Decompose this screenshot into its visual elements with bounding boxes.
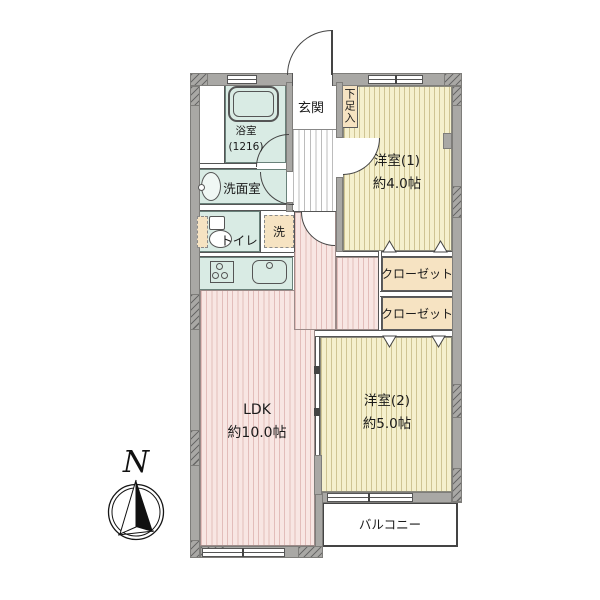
label-balcony: バルコニー xyxy=(359,515,421,535)
window-top-room1-mullion xyxy=(395,75,397,84)
hatch-right-mid2 xyxy=(452,384,462,418)
label-washroom: 洗面室 xyxy=(223,179,261,199)
ldk-room2-slider xyxy=(315,337,320,456)
washbasin-faucet xyxy=(198,184,205,191)
kitchen-sink-faucet xyxy=(266,262,273,269)
window-top-bathroom xyxy=(227,75,257,84)
room1-bottom-wall xyxy=(336,251,453,257)
laundry-pan: 洗 xyxy=(264,215,294,248)
toilet-cabinet xyxy=(197,216,208,248)
label-bathroom: 浴室 (1216) xyxy=(229,124,264,156)
kitchen-top-wall xyxy=(199,252,294,257)
stove-burner-3 xyxy=(221,272,228,279)
hatch-left-mid xyxy=(190,294,200,330)
corridor-room1-wall-lower xyxy=(336,177,343,252)
room-ldk-floor-arm-b xyxy=(336,257,379,330)
entrance-door-leaf xyxy=(331,30,333,75)
hatch-bottom-left xyxy=(190,540,200,558)
window-balcony-slider xyxy=(327,493,413,502)
label-closet2: クローゼット xyxy=(381,305,453,324)
label-toilet: トイレ xyxy=(220,231,258,251)
toilet-laundry-divider xyxy=(260,211,261,252)
right-wall-pillar xyxy=(443,133,452,149)
hatch-right-lower xyxy=(452,468,462,502)
compass: N xyxy=(96,444,180,554)
stove-burner-1 xyxy=(216,263,223,270)
bathtub-inner xyxy=(233,91,274,117)
ldk-balcony-wall xyxy=(315,492,323,547)
slider-tick-2 xyxy=(314,408,320,416)
slider-lower-wall xyxy=(314,455,322,495)
outer-wall-right xyxy=(452,73,462,503)
hatch-top-left xyxy=(190,73,208,86)
corridor-floor xyxy=(293,130,336,211)
closet-divider-wall xyxy=(380,291,453,297)
slider-tick-1 xyxy=(314,366,320,374)
washroom-toilet-wall xyxy=(199,204,294,211)
hatch-left-lower xyxy=(190,430,200,466)
genkan-step-line xyxy=(293,129,336,130)
laundry-label: 洗 xyxy=(273,223,285,240)
room2-top-wall xyxy=(315,330,455,337)
entrance-door-arc xyxy=(287,30,332,75)
label-room1: 洋室(1) 約4.0帖 xyxy=(373,150,421,196)
toilet-tank xyxy=(209,216,225,230)
compass-north-label: N xyxy=(122,445,151,480)
stove-burner-2 xyxy=(212,272,219,279)
label-closet1: クローゼット xyxy=(381,265,453,284)
label-room2: 洋室(2) 約5.0帖 xyxy=(363,390,411,436)
hatch-right-upper xyxy=(452,86,462,106)
bathroom-left-divider xyxy=(224,82,225,163)
window-bottom-ldk-mullion xyxy=(242,548,244,557)
floorplan-canvas: 洗 N 玄関 下足入 浴室 (1216) 洗面室 トイレ 洋室(1) 約4.0帖… xyxy=(0,0,600,600)
hatch-bottom-right xyxy=(298,546,323,558)
window-balcony-mullion xyxy=(368,493,370,502)
hatch-left-upper xyxy=(190,86,200,106)
label-genkan: 玄関 xyxy=(298,99,324,120)
laundry-right-divider xyxy=(294,211,295,252)
hatch-right-mid1 xyxy=(452,186,462,218)
label-ldk: LDK 約10.0帖 xyxy=(227,399,286,445)
bathroom-bottom-wall xyxy=(199,163,257,169)
label-shoe-storage: 下足入 xyxy=(341,88,357,124)
hatch-top-right xyxy=(444,73,462,86)
